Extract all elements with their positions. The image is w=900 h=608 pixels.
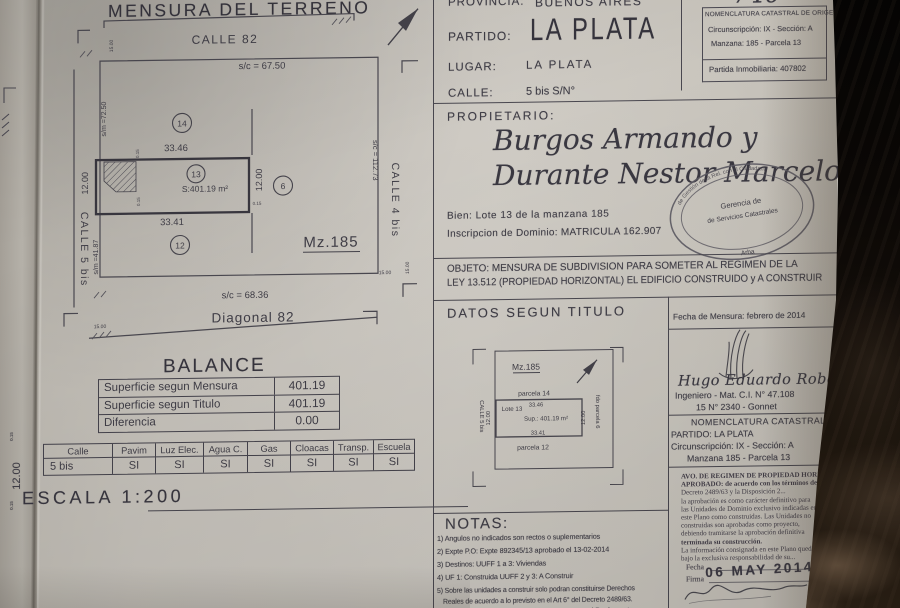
balance-table: Superficie segun Mensura 401.19 Superfic…	[98, 376, 340, 433]
mini-parcela-14: parcela 14	[518, 390, 550, 397]
partido-value: LA PLATA	[530, 11, 657, 48]
services-header: Cloacas	[291, 441, 334, 456]
calle-label: CALLE:	[448, 87, 494, 100]
balance-row-label: Superficie segun Mensura	[99, 378, 275, 397]
nota-line: 1) Angulos no indicados son rectos o sup…	[437, 532, 600, 543]
sliver-tiny-dim-2: 0.15	[9, 501, 14, 510]
site-plan-drawing: CALLE 82 s/c = 67.50 14 13 6 12 33.46 33…	[36, 0, 436, 352]
nota-line: 2) Expte P.O: Expte 892345/13 aprobado e…	[437, 545, 609, 556]
dim-15-d: 15.00	[94, 324, 107, 330]
panel-divider-line	[433, 0, 434, 608]
parcel-6-number: 6	[281, 181, 286, 191]
street-bottom-label: Diagonal 82	[211, 309, 294, 325]
balance-title: BALANCE	[163, 355, 266, 378]
dim-015-b: 0.15	[136, 197, 141, 206]
services-value: SI	[291, 455, 334, 472]
street-line-top	[104, 14, 354, 28]
propietario-label: PROPIETARIO:	[447, 108, 555, 124]
dim-right-label: 12.00	[254, 169, 264, 192]
balance-row-value: 401.19	[275, 396, 339, 411]
street-right-label: CALLE 4 bis	[389, 162, 401, 237]
street-top-label: CALLE 82	[192, 32, 259, 47]
paper-bottom-shading	[0, 566, 470, 608]
dim-bottom-label: 33.41	[160, 217, 184, 228]
mz-underline	[303, 251, 360, 252]
dim-sc-bottom: s/c = 68.36	[222, 290, 269, 302]
dim-sc-right: s/c = 112.73	[371, 140, 380, 181]
mini-dim-bottom: 33.41	[531, 430, 546, 436]
services-header: Pavim	[113, 443, 156, 458]
corner-bracket-tr	[402, 61, 418, 73]
parcel-13-number: 13	[191, 169, 201, 179]
scale-rule-line	[148, 506, 468, 511]
corner-bracket-tl	[78, 30, 90, 43]
services-value: SI	[113, 457, 156, 474]
services-header: Escuela	[374, 440, 414, 455]
parcel-14-number: 14	[177, 118, 187, 128]
corner-bracket-br	[403, 284, 417, 297]
calle-value: 5 bis S/N°	[526, 85, 575, 98]
north-arrow	[388, 9, 418, 45]
manzana-label: Mz.185	[303, 233, 358, 251]
mini-dim-right: 12.00	[581, 411, 587, 426]
dim-sm-upper: s/m =72.50	[101, 101, 108, 136]
services-header: Luz Elec.	[156, 443, 204, 458]
services-value: SI	[334, 454, 374, 471]
lugar-label: LUGAR:	[448, 61, 497, 74]
dim-sm-lower: s/m =41.87	[93, 240, 100, 275]
mini-lote-label: Lote 13	[502, 406, 523, 413]
dim-15-a: 15.00	[109, 39, 115, 52]
dim-sc-top: s/c = 67.50	[239, 61, 286, 73]
sliver-dim-label: 12.00	[11, 462, 23, 490]
services-header: Calle	[44, 444, 113, 459]
sliver-tiny-dim-1: 0.15	[9, 432, 14, 441]
balance-row-label: Superficie segun Titulo	[99, 395, 275, 414]
built-area-hatch	[104, 162, 136, 192]
mini-north-arrow	[577, 360, 597, 383]
mini-sup-label: Sup.: 401.19 m²	[524, 415, 568, 423]
dim-015-a: 0.15	[135, 149, 140, 158]
datos-column-divider	[668, 297, 669, 608]
objeto-line-1: OBJETO: MENSURA DE SUBDIVISION PARA SOME…	[447, 259, 798, 275]
dim-15-b: 15.00	[379, 270, 392, 276]
dim-top-label: 33.46	[164, 143, 188, 154]
services-value: SI	[156, 457, 204, 474]
scale-label: ESCALA 1:200	[22, 486, 184, 509]
mini-fdo-parcela-6: fdo parcela 6	[594, 395, 600, 429]
services-value: SI	[204, 456, 248, 473]
dim-15-c: 15.00	[405, 261, 411, 274]
parcel-12-number: 12	[175, 240, 185, 250]
dim-left-label: 12.00	[80, 172, 90, 195]
notas-title: NOTAS:	[445, 515, 509, 533]
balance-row: Diferencia 0.00	[99, 412, 339, 432]
dim-015-c: 0.15	[253, 201, 262, 206]
mini-dim-left: 12.00	[486, 411, 492, 426]
parcel-13-area: S:401.19 m²	[182, 183, 228, 194]
bien-line: Bien: Lote 13 de la manzana 185	[447, 209, 609, 222]
lugar-value: LA PLATA	[526, 59, 593, 72]
owner-name-line-1: Burgos Armando y	[493, 120, 757, 157]
photographed-survey-document: 12.00 0.15 0.15 MENSURA DEL TERRENO	[0, 0, 900, 608]
datos-titulo-heading: DATOS SEGUN TITULO	[447, 303, 626, 320]
services-value: SI	[374, 454, 414, 471]
nota-line: Reales de acuerdo a lo previsto en el Ar…	[443, 594, 632, 606]
services-header: Gas	[248, 441, 291, 456]
provincia-label: PROVINCIA:	[448, 0, 524, 9]
services-table: Calle Pavim Luz Elec. Agua C. Gas Cloaca…	[43, 439, 415, 476]
street-left-label: CALLE 5 bis	[78, 212, 90, 287]
services-header: Agua C.	[204, 442, 248, 457]
mini-plan-drawing: Mz.185 parcela 14 Lote 13 33.46 Sup.: 40…	[458, 327, 638, 495]
mini-mz-label: Mz.185	[512, 362, 540, 372]
partido-label: PARTIDO:	[448, 29, 512, 44]
plan-panel: MENSURA DEL TERRENO	[36, 0, 436, 608]
balance-row-value: 401.19	[275, 378, 339, 393]
inscripcion-line: Inscripcion de Dominio: MATRICULA 162.90…	[447, 226, 661, 240]
origin-column-divider	[681, 0, 682, 91]
notas-box-top-line	[433, 510, 668, 514]
balance-row-label: Diferencia	[99, 413, 275, 432]
stamp-line-1: Gerencia de	[720, 196, 762, 211]
corner-bracket-bl	[64, 313, 78, 326]
services-header: Transp.	[334, 440, 374, 455]
mini-calle-5bis: CALLE 5 bis	[478, 400, 484, 432]
services-value: SI	[248, 455, 291, 472]
provincia-value: BUENOS AIRES	[535, 0, 642, 10]
mini-dim-top: 33.46	[529, 402, 544, 408]
balance-row-value: 0.00	[275, 413, 339, 428]
services-value: 5 bis	[44, 458, 113, 475]
nomenclatura-partido: PARTIDO: LA PLATA	[671, 429, 753, 440]
mini-parcela-12: parcela 12	[517, 444, 549, 451]
fecha-label: Fecha	[686, 562, 704, 571]
